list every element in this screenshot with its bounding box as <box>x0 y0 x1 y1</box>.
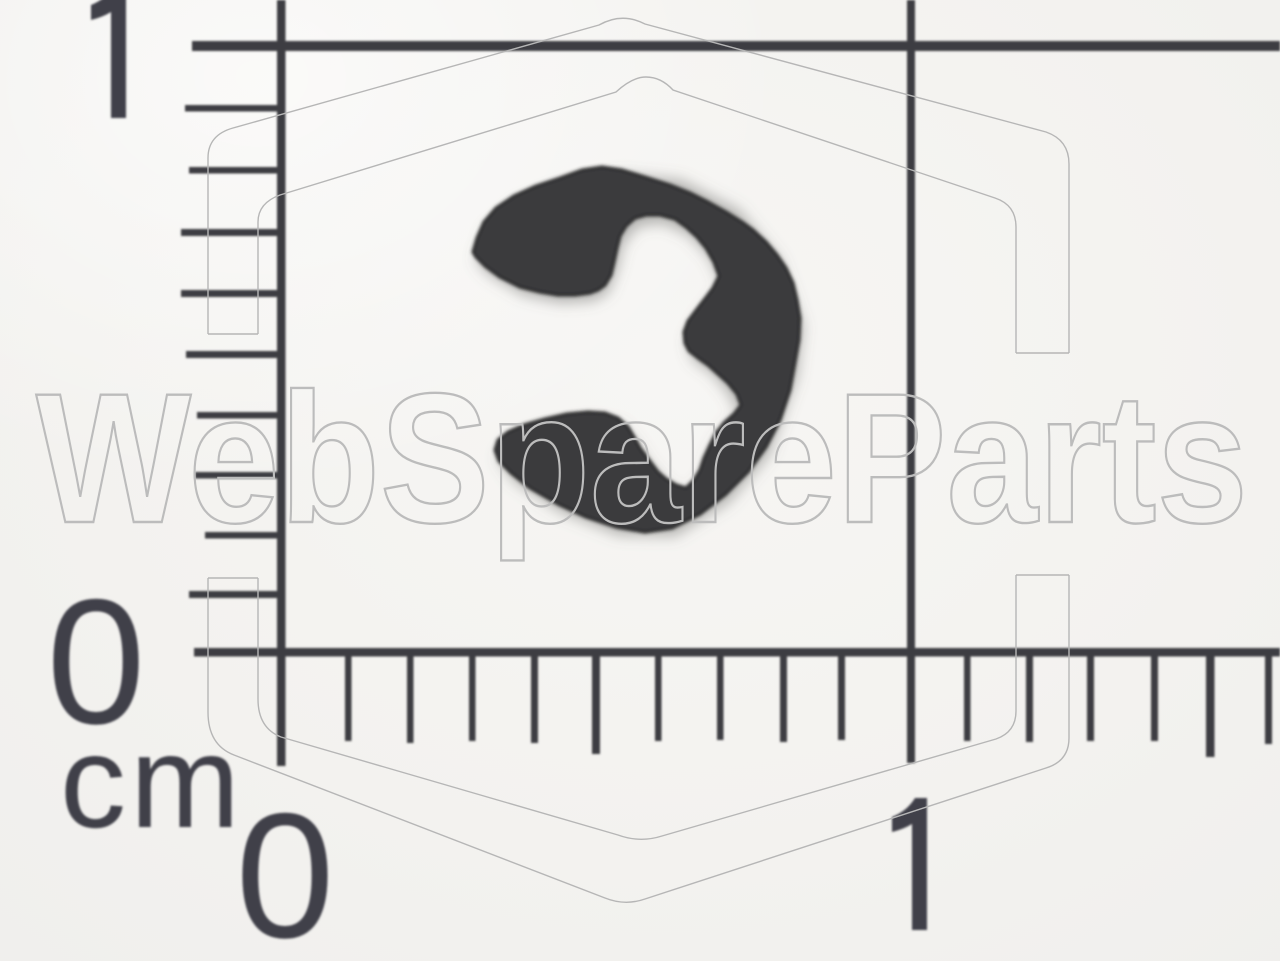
svg-text:0: 0 <box>236 776 335 961</box>
svg-text:cm: cm <box>60 708 244 855</box>
svg-text:WebSpareParts: WebSpareParts <box>36 356 1248 562</box>
